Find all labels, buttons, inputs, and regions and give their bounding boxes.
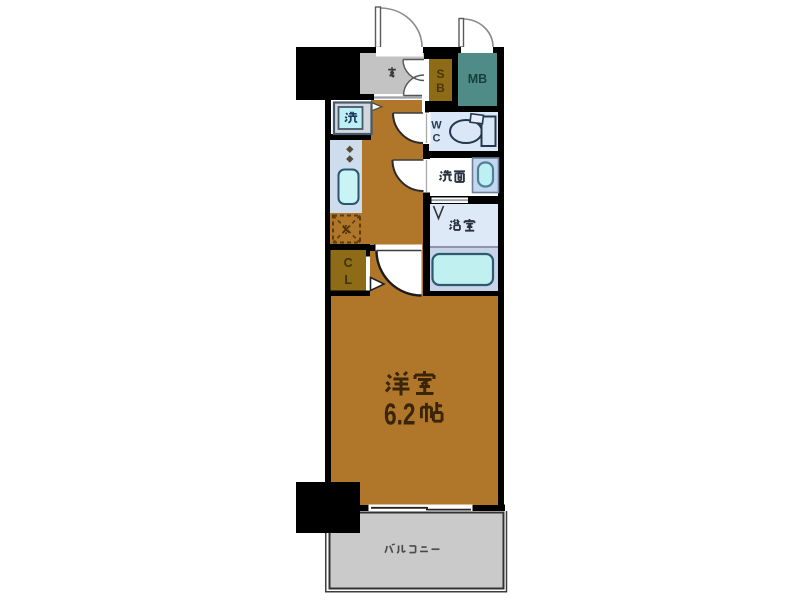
svg-text:C: C bbox=[344, 256, 353, 270]
svg-text:S: S bbox=[436, 67, 444, 81]
svg-text:C: C bbox=[433, 133, 441, 145]
svg-text:6.2: 6.2 bbox=[384, 396, 415, 431]
svg-text:MB: MB bbox=[468, 72, 487, 86]
svg-text:W: W bbox=[431, 120, 442, 132]
svg-text:B: B bbox=[436, 81, 445, 95]
svg-text:L: L bbox=[344, 273, 352, 287]
